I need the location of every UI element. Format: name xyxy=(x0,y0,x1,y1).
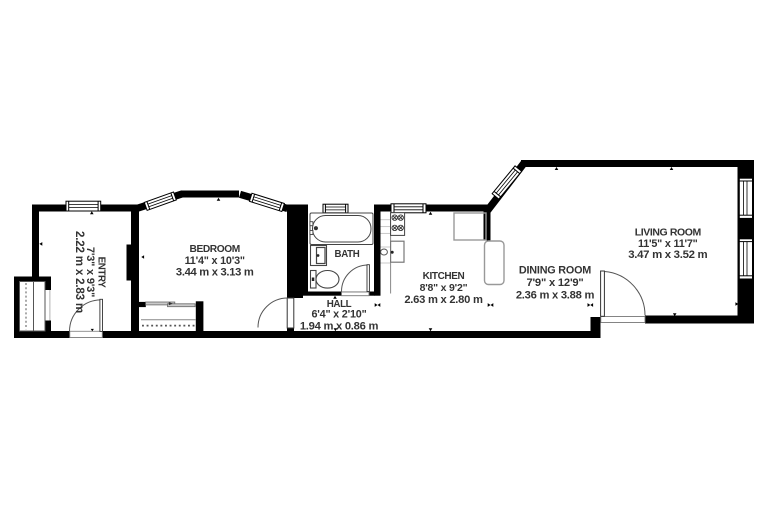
svg-text:11'4" x 10'3": 11'4" x 10'3" xyxy=(185,255,245,267)
svg-text:1.94 m x 0.86 m: 1.94 m x 0.86 m xyxy=(300,321,379,333)
svg-text:2.36 m x 3.88 m: 2.36 m x 3.88 m xyxy=(516,290,595,302)
svg-text:3.47 m x 3.52 m: 3.47 m x 3.52 m xyxy=(628,249,707,261)
svg-text:2.22 m x 2.83 m: 2.22 m x 2.83 m xyxy=(73,231,86,313)
svg-text:7'9" x 12'9": 7'9" x 12'9" xyxy=(526,277,583,289)
svg-text:8'8" x 9'2": 8'8" x 9'2" xyxy=(420,282,468,294)
svg-text:KITCHEN: KITCHEN xyxy=(423,271,465,282)
svg-text:3.44 m x 3.13 m: 3.44 m x 3.13 m xyxy=(176,266,254,278)
svg-text:DINING ROOM: DINING ROOM xyxy=(519,265,591,277)
svg-text:LIVING ROOM: LIVING ROOM xyxy=(635,227,702,239)
svg-text:6'4" x 2'10": 6'4" x 2'10" xyxy=(311,308,366,320)
svg-text:2.63 m x 2.80 m: 2.63 m x 2.80 m xyxy=(404,294,483,306)
svg-text:BATH: BATH xyxy=(335,249,360,260)
svg-text:BEDROOM: BEDROOM xyxy=(189,244,239,255)
